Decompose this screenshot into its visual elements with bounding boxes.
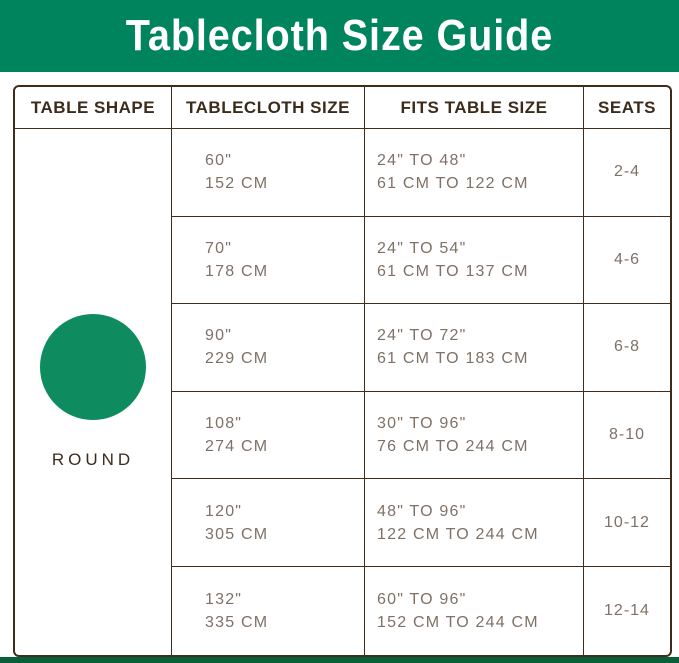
size-inches: 108": [205, 412, 364, 435]
size-inches: 60": [205, 149, 364, 172]
fits-cm: 61 CM TO 183 CM: [377, 347, 583, 370]
round-shape-icon: [40, 314, 146, 420]
seats-cell: 8-10: [584, 392, 670, 480]
header-seats: SEATS: [584, 87, 670, 129]
seats-value: 4-6: [614, 251, 640, 269]
seats-cell: 6-8: [584, 304, 670, 392]
fits-table-size-cell: 24" TO 54" 61 CM TO 137 CM: [365, 217, 584, 305]
header-fits-table-size: FITS TABLE SIZE: [365, 87, 584, 129]
fits-cm: 152 CM TO 244 CM: [377, 611, 583, 634]
size-cm: 152 CM: [205, 172, 364, 195]
fits-cm: 61 CM TO 137 CM: [377, 260, 583, 283]
fits-table-size-cell: 30" TO 96" 76 CM TO 244 CM: [365, 392, 584, 480]
tablecloth-size-cell: 90" 229 CM: [172, 304, 365, 392]
size-inches: 132": [205, 588, 364, 611]
seats-value: 12-14: [604, 602, 650, 620]
size-cm: 335 CM: [205, 611, 364, 634]
shape-label: ROUND: [52, 450, 134, 470]
fits-inches: 24" TO 54": [377, 237, 583, 260]
fits-inches: 48" TO 96": [377, 500, 583, 523]
seats-cell: 4-6: [584, 217, 670, 305]
fits-cm: 76 CM TO 244 CM: [377, 435, 583, 458]
fits-cm: 61 CM TO 122 CM: [377, 172, 583, 195]
size-cm: 274 CM: [205, 435, 364, 458]
fits-table-size-cell: 24" TO 72" 61 CM TO 183 CM: [365, 304, 584, 392]
fits-inches: 30" TO 96": [377, 412, 583, 435]
seats-cell: 10-12: [584, 479, 670, 567]
seats-cell: 2-4: [584, 129, 670, 217]
fits-table-size-cell: 60" TO 96" 152 CM TO 244 CM: [365, 567, 584, 655]
fits-table-size-cell: 48" TO 96" 122 CM TO 244 CM: [365, 479, 584, 567]
fits-inches: 60" TO 96": [377, 588, 583, 611]
size-cm: 229 CM: [205, 347, 364, 370]
table-shape-cell: ROUND: [15, 129, 172, 655]
fits-inches: 24" TO 48": [377, 149, 583, 172]
bottom-bar: [0, 657, 679, 663]
page-title: Tablecloth Size Guide: [126, 11, 553, 61]
size-inches: 120": [205, 500, 364, 523]
title-banner: Tablecloth Size Guide: [0, 0, 679, 72]
fits-inches: 24" TO 72": [377, 324, 583, 347]
fits-cm: 122 CM TO 244 CM: [377, 523, 583, 546]
seats-value: 10-12: [604, 514, 650, 532]
tablecloth-size-cell: 108" 274 CM: [172, 392, 365, 480]
tablecloth-size-cell: 132" 335 CM: [172, 567, 365, 655]
seats-value: 8-10: [609, 426, 645, 444]
size-inches: 70": [205, 237, 364, 260]
size-cm: 178 CM: [205, 260, 364, 283]
header-table-shape: TABLE SHAPE: [15, 87, 172, 129]
size-cm: 305 CM: [205, 523, 364, 546]
size-inches: 90": [205, 324, 364, 347]
header-tablecloth-size: TABLECLOTH SIZE: [172, 87, 365, 129]
seats-value: 2-4: [614, 163, 640, 181]
size-guide-table: TABLE SHAPE TABLECLOTH SIZE FITS TABLE S…: [13, 85, 672, 657]
seats-value: 6-8: [614, 338, 640, 356]
fits-table-size-cell: 24" TO 48" 61 CM TO 122 CM: [365, 129, 584, 217]
seats-cell: 12-14: [584, 567, 670, 655]
tablecloth-size-cell: 70" 178 CM: [172, 217, 365, 305]
tablecloth-size-cell: 60" 152 CM: [172, 129, 365, 217]
tablecloth-size-cell: 120" 305 CM: [172, 479, 365, 567]
